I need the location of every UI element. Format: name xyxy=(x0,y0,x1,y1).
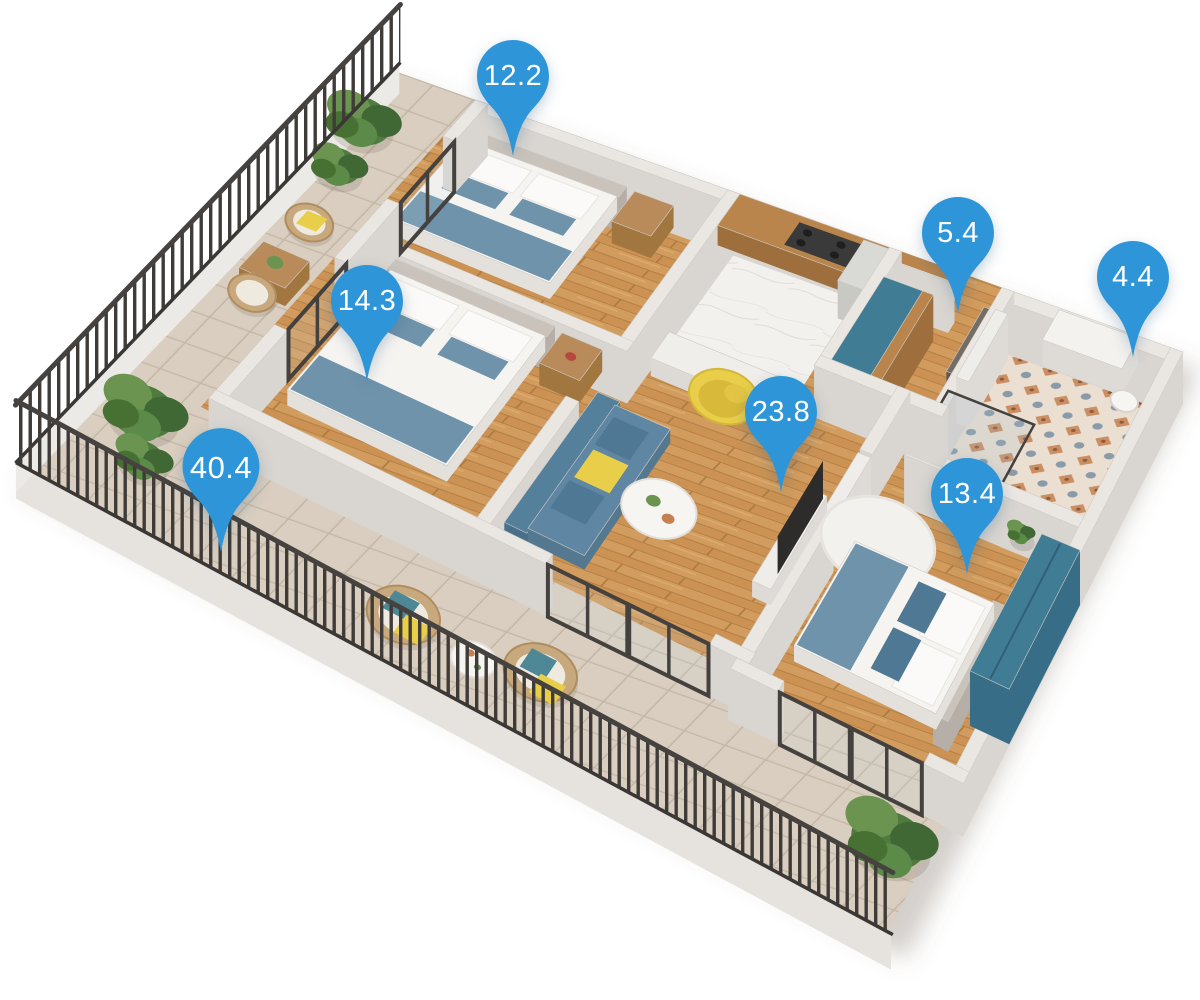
area-value: 23.8 xyxy=(744,375,818,449)
area-pin-bedroom-1[interactable]: 12.2 xyxy=(476,39,550,157)
area-pin-bedroom-3[interactable]: 13.4 xyxy=(930,457,1004,575)
area-value: 4.4 xyxy=(1096,240,1170,314)
area-pin-bathroom[interactable]: 4.4 xyxy=(1096,240,1170,358)
floorplan-3d-scene xyxy=(0,0,1200,1000)
area-value: 5.4 xyxy=(921,196,995,270)
area-value: 40.4 xyxy=(181,427,261,507)
area-value: 12.2 xyxy=(476,39,550,113)
area-pin-hallway[interactable]: 5.4 xyxy=(921,196,995,314)
area-value: 14.3 xyxy=(330,264,404,338)
area-value: 13.4 xyxy=(930,457,1004,531)
floorplan-stage: 12.2 14.3 5.4 4.4 23.8 40.4 13.4 xyxy=(0,0,1200,1000)
area-pin-terrace[interactable]: 40.4 xyxy=(181,427,261,553)
area-pin-living-room[interactable]: 23.8 xyxy=(744,375,818,493)
area-pin-bedroom-2[interactable]: 14.3 xyxy=(330,264,404,382)
